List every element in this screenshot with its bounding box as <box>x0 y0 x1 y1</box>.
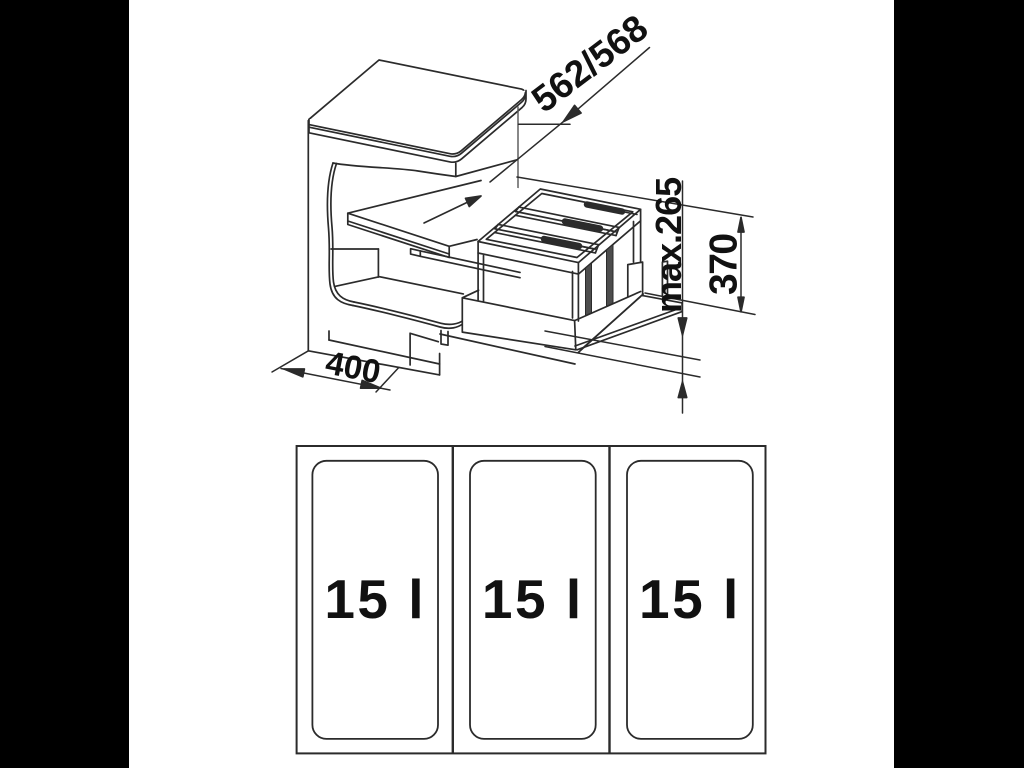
svg-text:15 l: 15 l <box>324 568 426 630</box>
svg-text:15 l: 15 l <box>482 568 584 630</box>
svg-text:max.265: max.265 <box>648 177 689 313</box>
svg-text:562/568: 562/568 <box>524 7 655 121</box>
svg-text:15 l: 15 l <box>639 568 741 630</box>
svg-text:370: 370 <box>703 234 746 295</box>
